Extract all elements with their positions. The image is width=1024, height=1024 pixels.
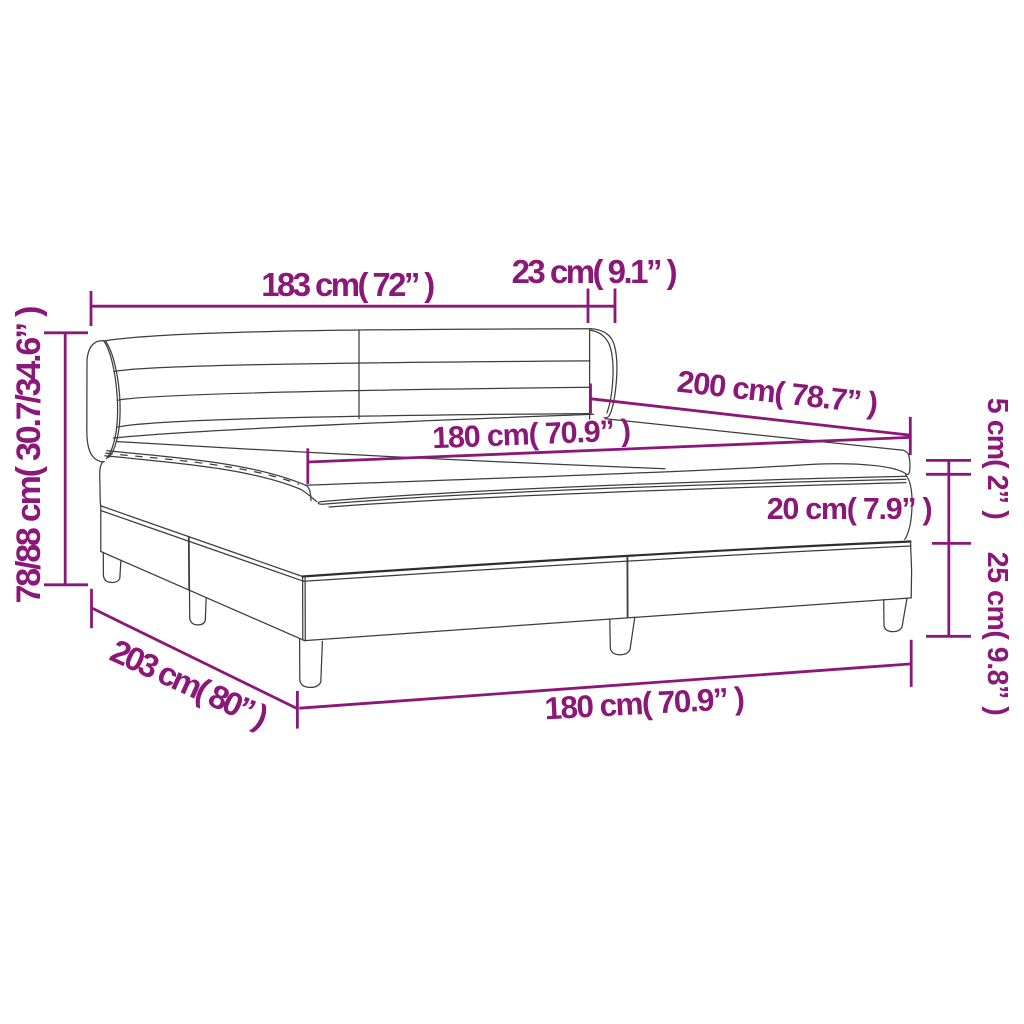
svg-text:180 cm( 70.9” ): 180 cm( 70.9” )	[544, 680, 746, 727]
svg-text:23 cm( 9.1” ): 23 cm( 9.1” )	[512, 253, 678, 290]
svg-text:25 cm( 9.8” ): 25 cm( 9.8” )	[981, 552, 1013, 716]
svg-text:78/88 cm( 30.7/34.6” ): 78/88 cm( 30.7/34.6” )	[10, 306, 48, 604]
svg-text:5 cm( 2” ): 5 cm( 2” )	[981, 398, 1013, 520]
svg-text:20 cm( 7.9” ): 20 cm( 7.9” )	[767, 492, 933, 526]
svg-text:183 cm( 72” ): 183 cm( 72” )	[261, 266, 435, 303]
